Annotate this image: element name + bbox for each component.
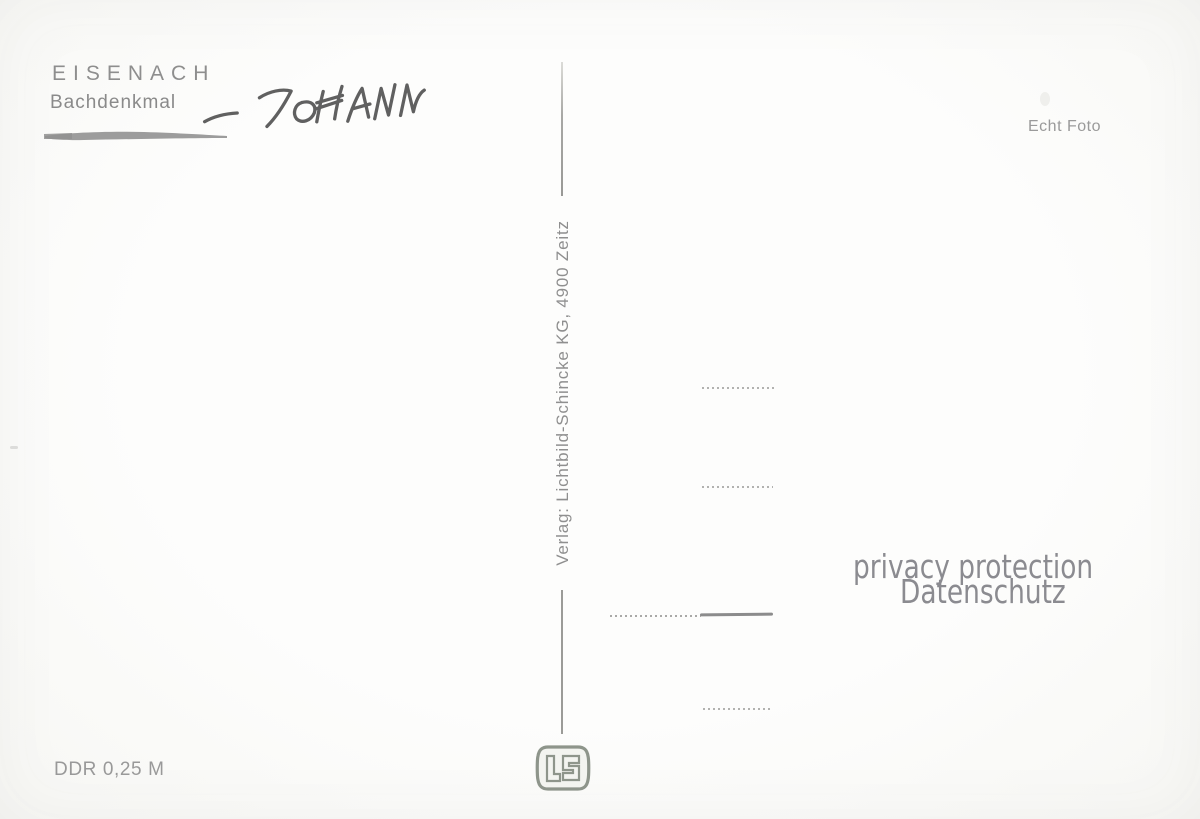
scan-artifact-left-edge: [10, 446, 18, 449]
address-line-3-solid-segment: [700, 613, 773, 617]
divider-line-bottom: [561, 590, 563, 734]
handwritten-note-johann: [196, 66, 429, 148]
photo-type-label: Echt Foto: [1028, 118, 1101, 136]
publisher-logo-ls-emblem: [534, 743, 592, 793]
scan-artifact-top-right: [1040, 92, 1050, 106]
address-dotted-line-3: [610, 615, 701, 617]
address-dotted-line-1: [702, 387, 775, 389]
subject-subtitle: Bachdenkmal: [50, 92, 176, 114]
postcard-back: EISENACH Bachdenkmal Echt Foto Verlag: L…: [0, 0, 1200, 819]
divider-line-top: [561, 62, 563, 196]
address-dotted-line-4: [703, 708, 772, 710]
watermark-line-2: Datenschutz: [900, 572, 1066, 611]
city-title: EISENACH: [52, 62, 215, 86]
publisher-imprint: Verlag: Lichtbild-Schincke KG, 4900 Zeit…: [552, 198, 574, 588]
address-dotted-line-2: [702, 486, 773, 488]
price-label: DDR 0,25 M: [54, 759, 165, 781]
